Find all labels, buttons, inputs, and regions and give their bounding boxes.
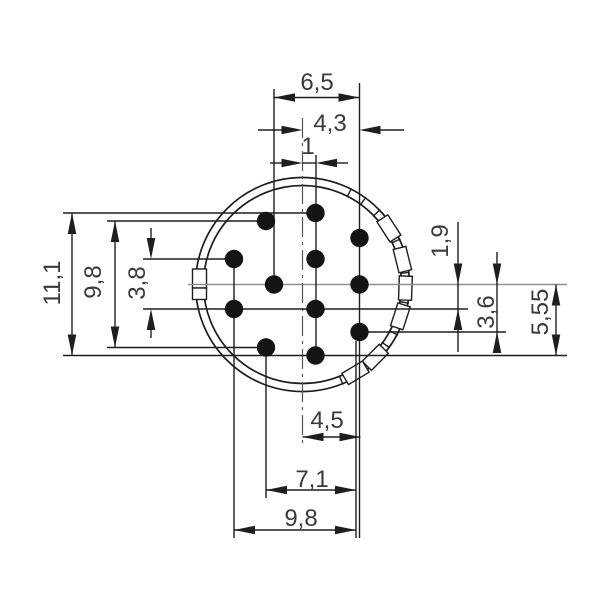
dim-label-9-8-left: 9,8 (80, 265, 107, 298)
pin-1 (306, 204, 324, 222)
dimension-top-4-3: 4,3 (258, 110, 404, 137)
pin-7 (350, 275, 368, 293)
pin-10 (350, 323, 368, 341)
pin-5 (306, 250, 324, 268)
dim-label-9-8-bottom: 9,8 (284, 505, 317, 532)
dimension-left-9-8: 9,8 (80, 221, 119, 348)
drawing-canvas: 6,5 4,3 1 11,1 9,8 3,8 (0, 0, 600, 600)
dim-label-4-3: 4,3 (313, 110, 346, 137)
dimension-bottom-7-1: 7,1 (266, 466, 356, 494)
pin-2 (257, 212, 275, 230)
dimension-bottom-4-5: 4,5 (303, 407, 361, 441)
dimension-left-11-1: 11,1 (39, 213, 76, 356)
dimension-right-5-55: 5,55 (527, 285, 560, 356)
dim-label-1: 1 (301, 133, 314, 160)
dimension-left-3-8: 3,8 (124, 228, 155, 338)
pin-9 (306, 300, 324, 318)
pin-6 (265, 275, 283, 293)
connector-dimensional-drawing: 6,5 4,3 1 11,1 9,8 3,8 (0, 0, 600, 600)
pin-3 (350, 229, 368, 247)
ring-key-left-lower (193, 288, 207, 300)
dim-label-4-5: 4,5 (310, 407, 343, 434)
pin-12 (306, 346, 324, 364)
dimension-right-3-6: 3,6 (473, 252, 501, 353)
dimension-top-1: 1 (270, 133, 348, 167)
dim-label-6-5: 6,5 (300, 69, 333, 96)
ring-key (391, 303, 411, 330)
dimension-bottom-9-8: 9,8 (234, 505, 356, 534)
ring-key (377, 215, 401, 242)
pin-4 (225, 250, 243, 268)
dim-label-3-6: 3,6 (473, 295, 500, 328)
dimension-top-6-5: 6,5 (274, 69, 360, 102)
pin-11 (257, 338, 275, 356)
ring-key (393, 246, 411, 272)
pin-8 (225, 300, 243, 318)
ring-key (398, 276, 412, 300)
dim-label-5-55: 5,55 (527, 289, 554, 336)
dim-label-3-8: 3,8 (124, 266, 151, 299)
dim-label-11-1: 11,1 (39, 261, 66, 306)
dim-label-1-9: 1,9 (427, 224, 454, 257)
dim-label-7-1: 7,1 (295, 466, 328, 493)
